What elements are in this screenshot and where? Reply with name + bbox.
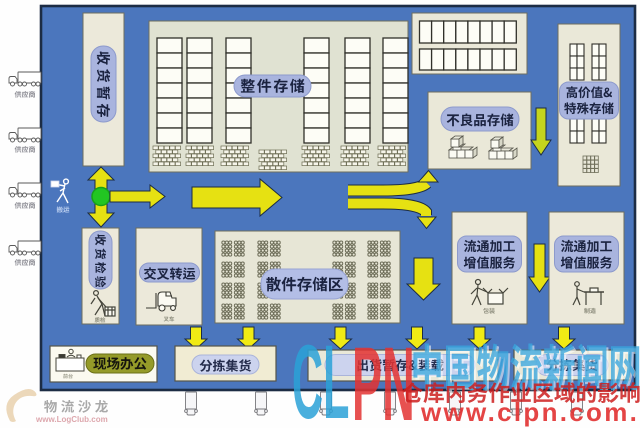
svg-text:www.clpn.com.cn: www.clpn.com.cn [420, 397, 640, 427]
svg-text:CL: CL [292, 324, 349, 428]
svg-text:PN: PN [352, 326, 415, 428]
svg-text:www.LogClub.com: www.LogClub.com [35, 415, 108, 424]
